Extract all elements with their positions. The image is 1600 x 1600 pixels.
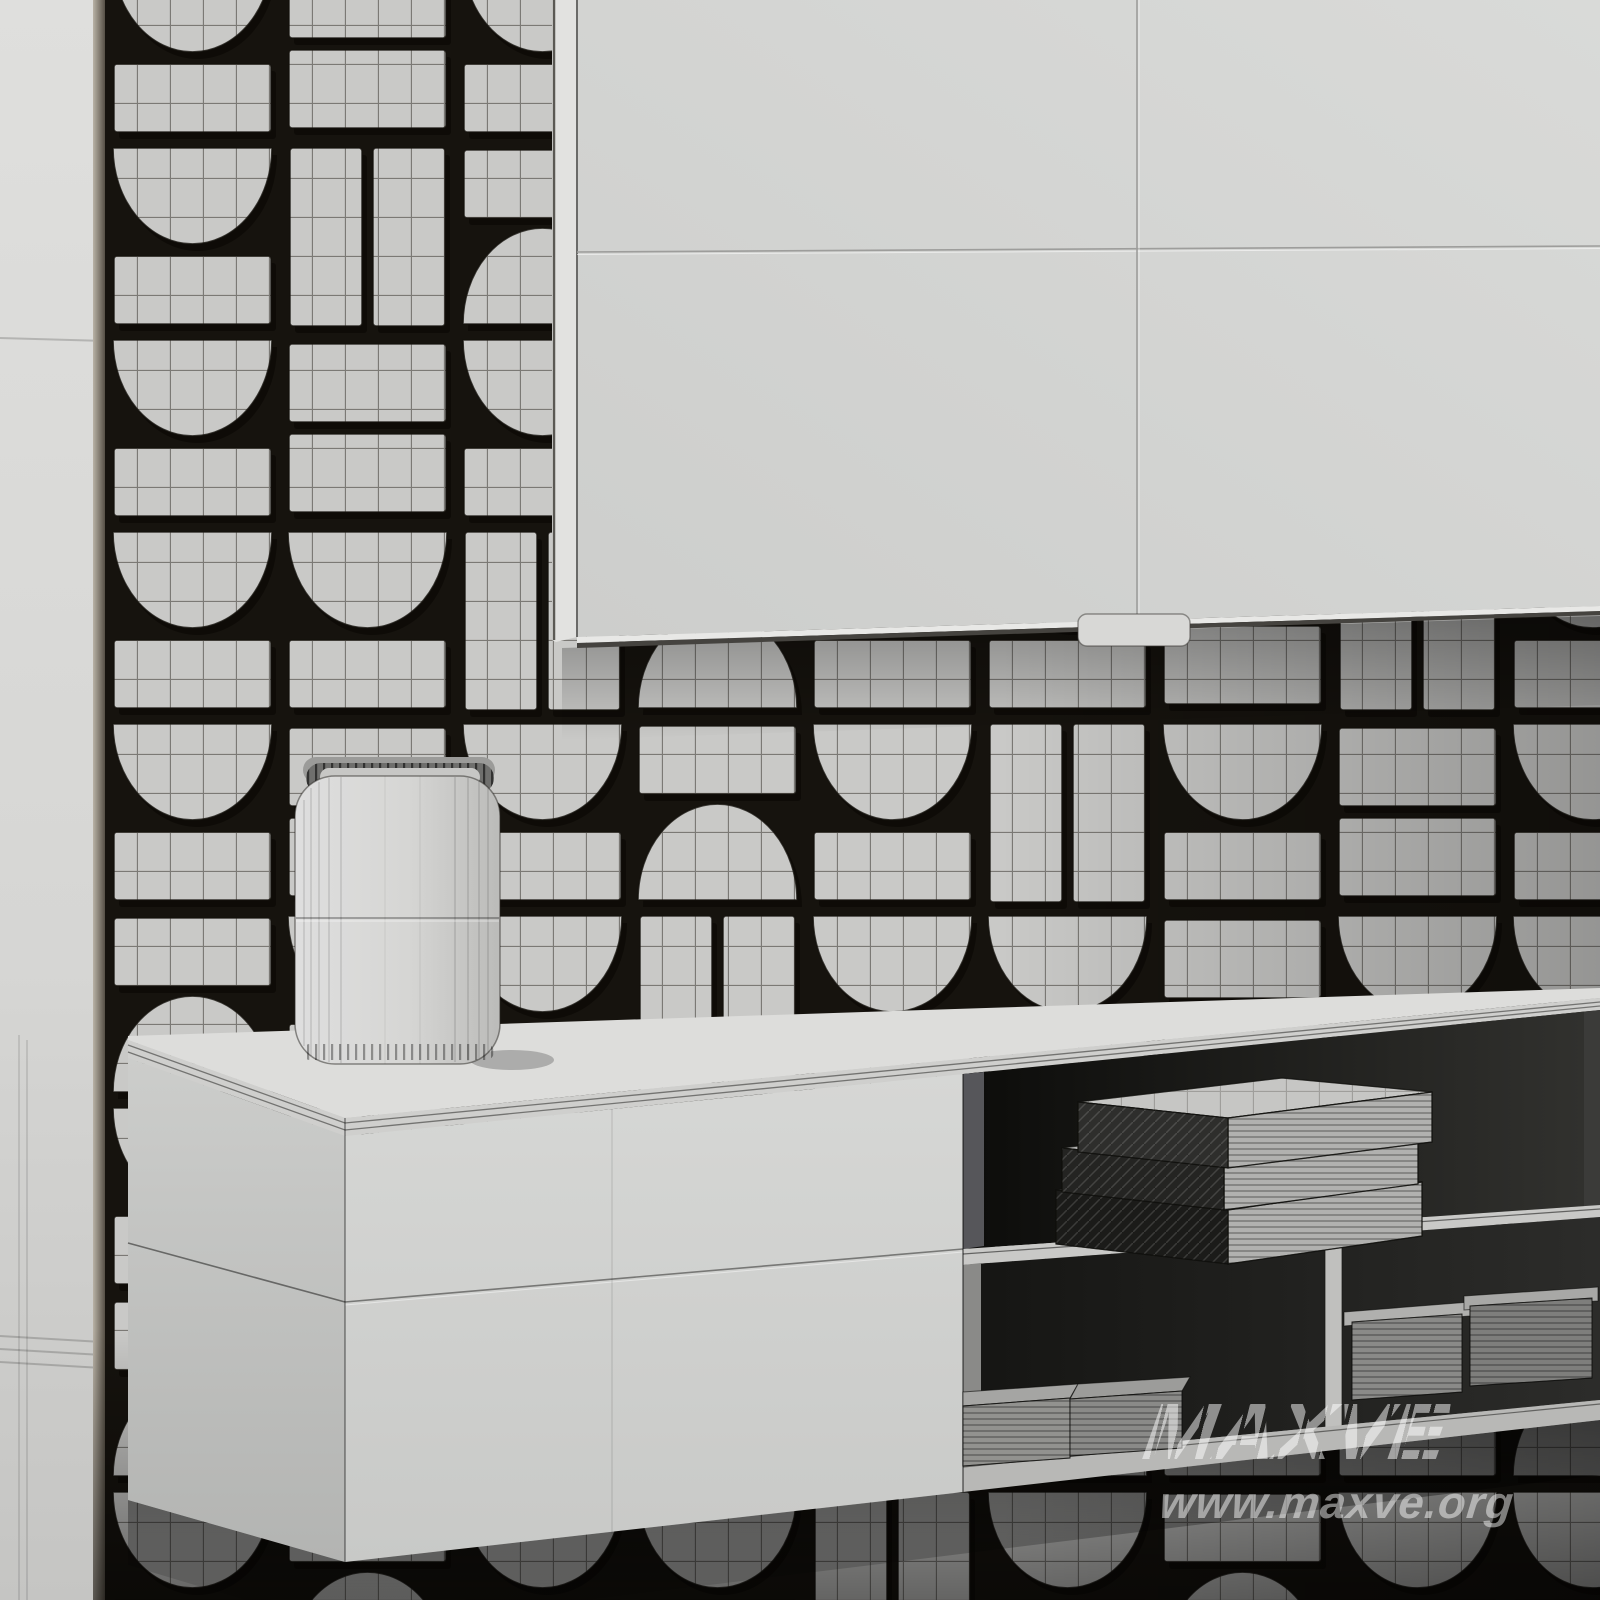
tile-shape <box>289 344 446 422</box>
wall-tile <box>289 0 451 135</box>
tile-shape <box>290 148 362 326</box>
tv-screen-face <box>577 0 1600 637</box>
tile-shape <box>114 256 271 324</box>
tile-shape <box>114 918 271 986</box>
cavity-inner-right-wall <box>1584 1010 1600 1208</box>
tile-shape <box>289 0 446 38</box>
tv-panel <box>552 0 1600 740</box>
render-canvas: MAXVE www.maxve.org <box>0 0 1600 1600</box>
box-body <box>295 776 500 1064</box>
book-stack <box>1056 1078 1432 1264</box>
box-bottom-rim <box>302 1044 494 1060</box>
tile-shape <box>114 448 271 516</box>
tile-shape <box>114 640 271 708</box>
tv-side-edge <box>552 0 577 642</box>
tile-shape <box>814 832 971 900</box>
tile-shape <box>114 832 271 900</box>
tile-shape <box>289 50 446 128</box>
wall-tile <box>113 0 277 139</box>
tv-mount-tab <box>1078 614 1190 646</box>
cavity-inner-left-wall <box>963 1072 984 1249</box>
tile-shape <box>373 148 445 326</box>
watermark-brand: MAXVE <box>1139 1392 1452 1472</box>
scene-graphics <box>0 0 1600 1600</box>
tile-shape <box>114 64 271 132</box>
tile-shape <box>289 640 446 708</box>
tile-shape <box>465 532 537 710</box>
console-left-end-face <box>128 1058 345 1562</box>
drawer-fronts <box>345 1074 963 1562</box>
tile-shape <box>289 434 446 512</box>
watermark-site-url: www.maxve.org <box>1158 1480 1517 1525</box>
